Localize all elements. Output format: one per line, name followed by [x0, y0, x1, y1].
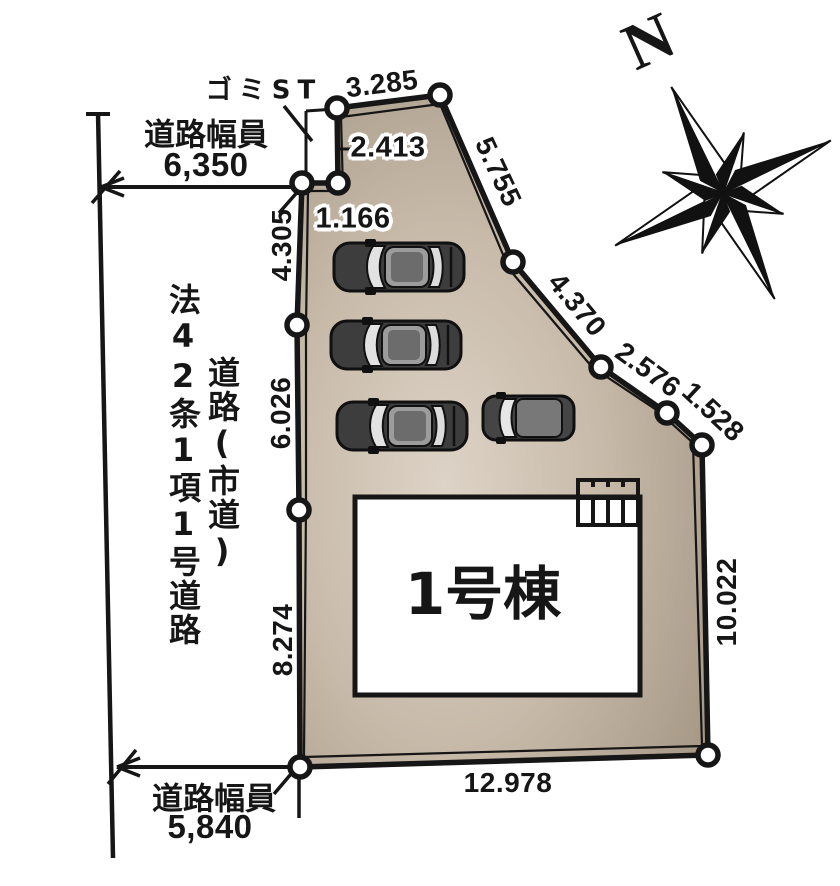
building-label: 1号棟 [405, 547, 561, 631]
dimension-west-upper: 4.305 [266, 209, 298, 282]
road-width-top-value: 6,350 [163, 146, 248, 184]
garbage-station-notch [284, 106, 336, 181]
dimension-notch-depth: 2.413 [350, 132, 425, 165]
dimension-east-edge: 10.022 [711, 558, 743, 647]
road-type-label: 道路(市道) [199, 356, 245, 572]
car-compact-4 [483, 392, 574, 444]
garbage-station-label: ゴミST [206, 70, 322, 107]
dimension-south-edge: 12.978 [464, 767, 553, 799]
car-sedan-2 [331, 317, 461, 373]
road-width-bottom-value: 5,840 [167, 808, 252, 846]
dimension-west-middle: 6.026 [265, 377, 297, 450]
road-edge-line [86, 112, 113, 858]
car-sedan-3 [337, 398, 467, 454]
dimension-west-lower: 8.274 [267, 604, 299, 677]
car-sedan-1 [334, 239, 464, 295]
site-plan-canvas: ゴミST 道路幅員 6,350 3.285 2.413 1.166 5.755 … [0, 0, 840, 886]
compass-rose [563, 34, 840, 351]
dimension-notch-width: 1.166 [315, 203, 390, 236]
